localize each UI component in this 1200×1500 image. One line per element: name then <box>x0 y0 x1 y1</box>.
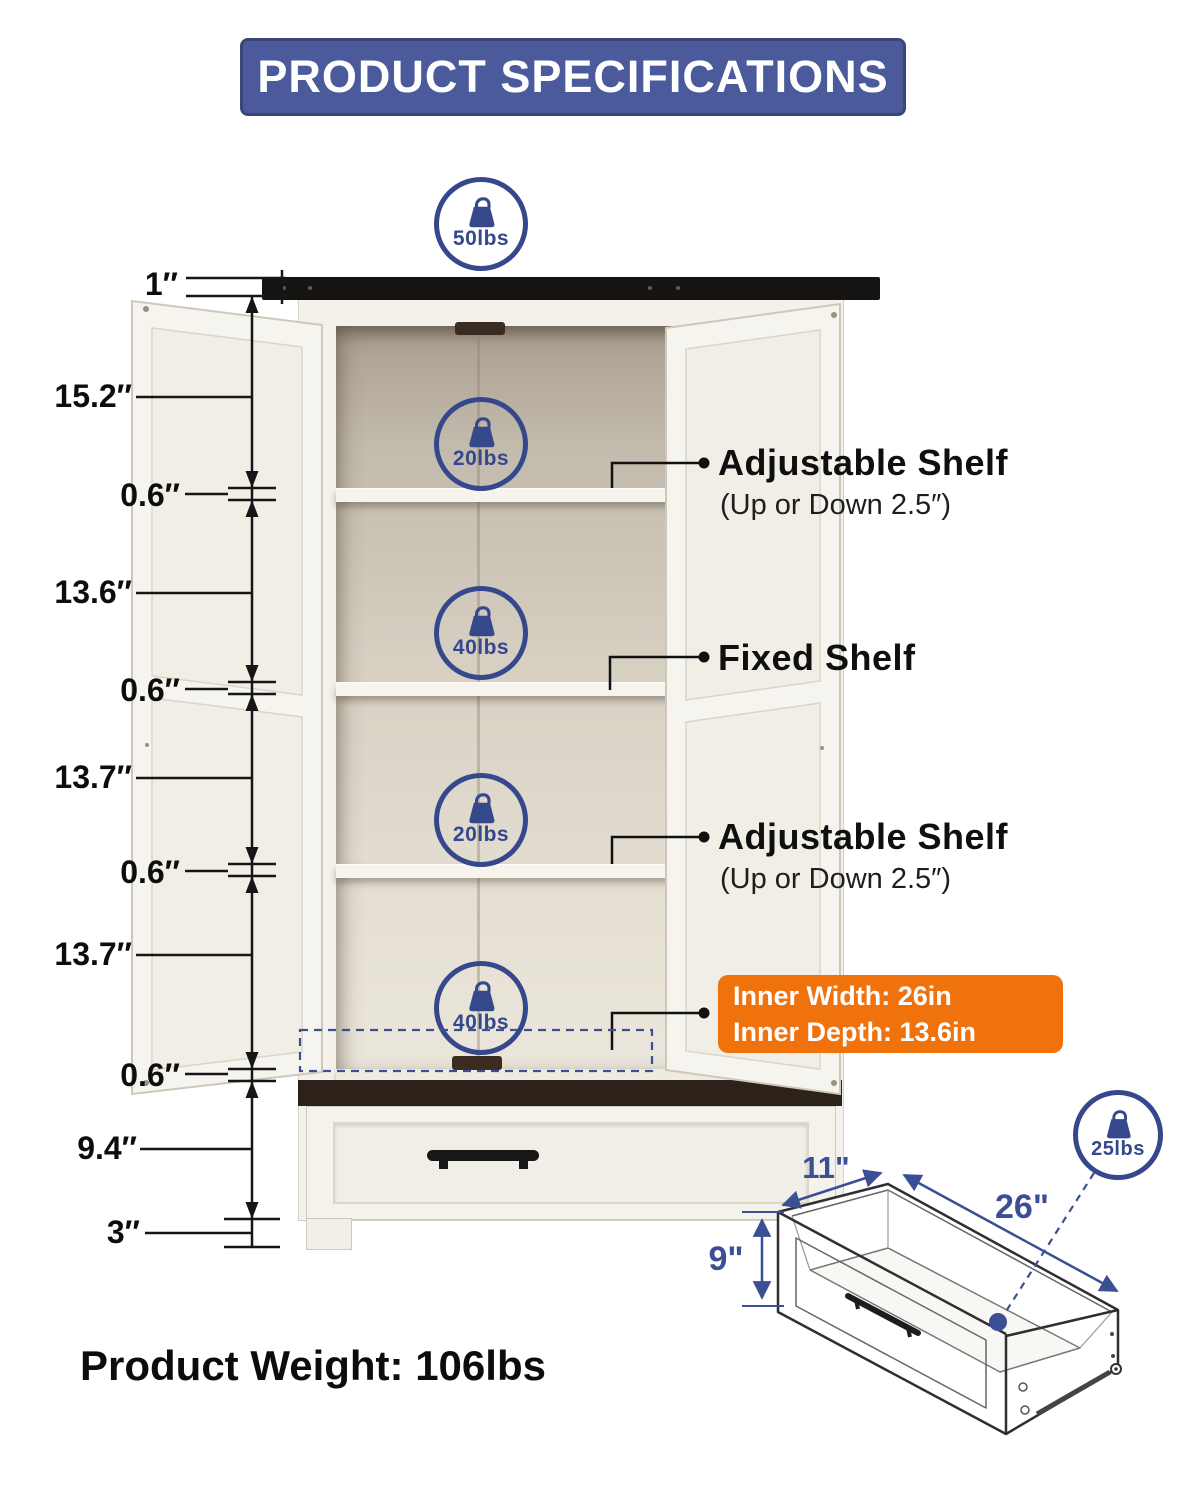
door-catch-top <box>455 322 505 335</box>
dimension-lines-left <box>136 270 286 1247</box>
dim-label-section-2: 13.6″ <box>38 574 132 611</box>
badge-label: 40lbs <box>453 636 509 660</box>
drawer-dim-depth: 11" <box>794 1150 858 1186</box>
dim-label-shelf-3-thickness: 0.6″ <box>100 854 180 891</box>
badge-label: 25lbs <box>1091 1138 1145 1161</box>
badge-label: 20lbs <box>453 447 509 471</box>
label-adjustable-shelf-top: Adjustable Shelf <box>718 442 1008 484</box>
label-adjustable-shelf-bottom-sub: (Up or Down 2.5″) <box>720 863 951 896</box>
screw-dot <box>676 286 680 290</box>
drawer-dim-height: 9" <box>700 1240 752 1279</box>
dim-label-drawer-section: 9.4″ <box>55 1130 137 1167</box>
dim-label-feet: 3″ <box>88 1214 140 1251</box>
screw-dot <box>282 286 286 290</box>
title-banner: PRODUCT SPECIFICATIONS <box>240 38 906 116</box>
dimension-arrowheads <box>246 296 259 1219</box>
weight-icon <box>461 197 501 229</box>
page-title: PRODUCT SPECIFICATIONS <box>257 51 888 103</box>
weight-badge-top: 50lbs <box>434 177 528 271</box>
weight-badge-shelf1: 20lbs <box>434 397 528 491</box>
weight-badge-shelf4: 40lbs <box>434 961 528 1055</box>
door-catch-bottom <box>452 1056 502 1070</box>
cabinet-top-slab <box>262 277 880 300</box>
label-adjustable-shelf-bottom: Adjustable Shelf <box>718 816 1008 858</box>
callout-dot <box>989 1313 1007 1331</box>
label-fixed-shelf: Fixed Shelf <box>718 637 916 679</box>
drawer-front <box>306 1106 836 1220</box>
cabinet-foot-right <box>790 1218 836 1250</box>
dim-label-floor-thickness: 0.6″ <box>100 1057 180 1094</box>
dim-label-shelf-2-thickness: 0.6″ <box>100 672 180 709</box>
badge-label: 50lbs <box>453 227 509 251</box>
drawer-dim-width: 26" <box>985 1188 1059 1227</box>
weight-badge-drawer: 25lbs <box>1073 1090 1163 1180</box>
product-weight-text: Product Weight: 106lbs <box>80 1342 546 1390</box>
shelf-fixed <box>336 682 772 696</box>
screw-dot <box>648 286 652 290</box>
inner-depth-text: Inner Depth: 13.6in <box>733 1014 1063 1050</box>
weight-icon <box>461 417 501 449</box>
screw-dot <box>308 286 312 290</box>
cabinet-foot-left <box>306 1218 352 1250</box>
weight-badge-shelf2: 40lbs <box>434 586 528 680</box>
weight-icon <box>461 606 501 638</box>
badge-label: 20lbs <box>453 823 509 847</box>
shelf-adjustable-bottom <box>336 864 772 878</box>
weight-icon <box>1099 1110 1137 1140</box>
dim-label-top-thickness: 1″ <box>110 266 178 303</box>
dim-label-section-1: 15.2″ <box>38 378 132 415</box>
weight-icon <box>461 793 501 825</box>
weight-icon <box>461 981 501 1013</box>
dim-label-section-3: 13.7″ <box>38 759 132 796</box>
shelf-adjustable-top <box>336 488 772 502</box>
dim-label-shelf-1-thickness: 0.6″ <box>100 477 180 514</box>
drawer-handle <box>427 1150 539 1161</box>
drawer-rail-band <box>298 1080 842 1106</box>
drawer-panel <box>333 1122 809 1204</box>
label-adjustable-shelf-top-sub: (Up or Down 2.5″) <box>720 489 951 522</box>
cabinet-interior <box>336 326 772 1070</box>
weight-badge-shelf3: 20lbs <box>434 773 528 867</box>
inner-dimensions-callout: Inner Width: 26in Inner Depth: 13.6in <box>718 975 1063 1053</box>
inner-width-text: Inner Width: 26in <box>733 978 1063 1014</box>
dim-label-section-4: 13.7″ <box>38 936 132 973</box>
badge-label: 40lbs <box>453 1011 509 1035</box>
product-spec-sheet: PRODUCT SPECIFICATIONS <box>0 0 1200 1500</box>
